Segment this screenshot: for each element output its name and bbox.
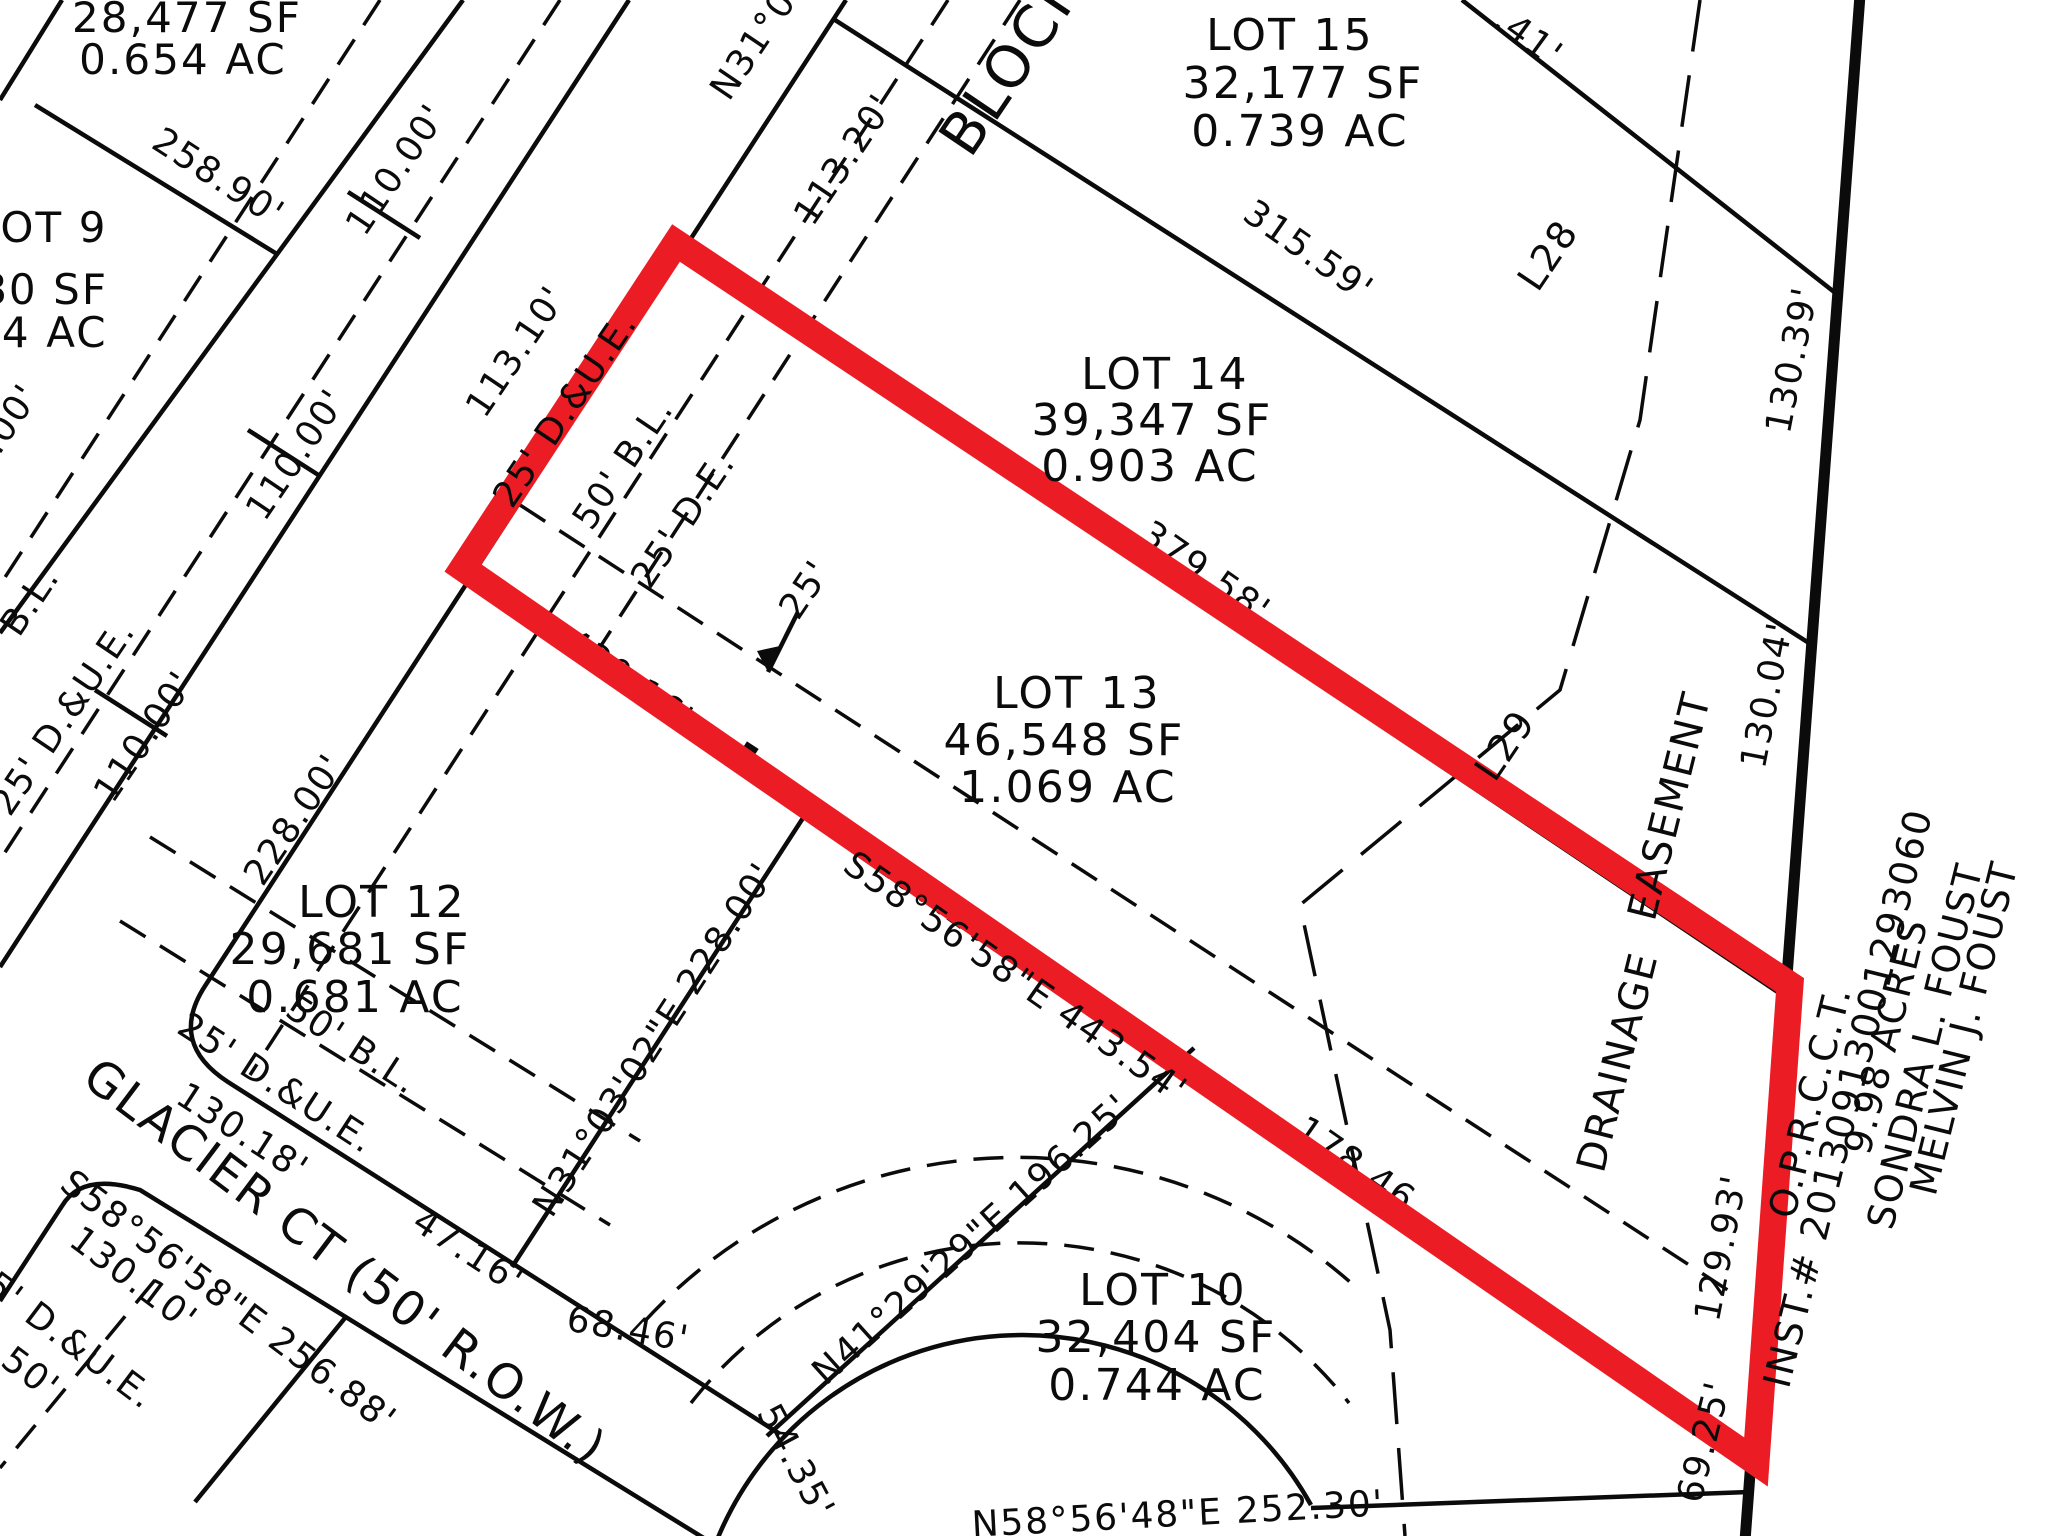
bearing-n58-252: N58°56'48"E 252.30' — [971, 1486, 1385, 1536]
dim-113-20: 113.20' — [789, 88, 902, 231]
dim-110-b: 110.00' — [241, 383, 354, 526]
arrow-25-label: 25' — [774, 555, 838, 626]
dim-258-90: 258.90' — [146, 122, 290, 233]
lot9-ac: 654 AC — [0, 312, 108, 354]
lot10-ac: 0.744 AC — [1048, 1364, 1266, 1408]
dim-69-25: 69.25' — [1673, 1378, 1738, 1507]
lot13-ac: 1.069 AC — [959, 766, 1177, 810]
dim-315-59: 315.59' — [1237, 195, 1379, 310]
lot12-name: LOT 12 — [298, 881, 466, 925]
bearing-s58-443: S58°56'58"E 443.54' — [837, 846, 1193, 1110]
dim-228-00: 228.00' — [239, 748, 352, 891]
lot13-sf: 46,548 SF — [944, 719, 1185, 763]
lot15-sf: 32,177 SF — [1183, 62, 1424, 106]
dim-129-93: 129.93' — [1690, 1172, 1754, 1325]
line-label-L28: L28 — [1511, 213, 1585, 297]
dim-68-46: 68.46' — [564, 1302, 692, 1359]
lot14-sf: 39,347 SF — [1032, 399, 1273, 443]
lot14-name: LOT 14 — [1081, 353, 1249, 397]
lot14-ac: 0.903 AC — [1041, 445, 1259, 489]
lot8-area-ac: 0.654 AC — [79, 39, 287, 81]
lot9-name: LOT 9 — [0, 207, 108, 249]
lot10-sf: 32,404 SF — [1036, 1316, 1277, 1360]
dim-110-a: 110.00' — [341, 98, 454, 241]
line-label-L29: L29 — [1468, 703, 1542, 787]
bearing-n31-top: N31°03'02"E — [705, 0, 875, 106]
dim-130-39: 130.39' — [1761, 284, 1825, 437]
easement-word: EASEMENT — [1622, 688, 1717, 924]
lot12-ac: 0.681 AC — [246, 976, 464, 1020]
drainage-word: DRAINAGE — [1571, 948, 1664, 1176]
dim-41-partial: .41' — [1487, 2, 1568, 75]
dim-110-d: 110.00' — [0, 378, 46, 521]
lot9-sf: ,480 SF — [0, 269, 108, 311]
lot10-name: LOT 10 — [1079, 1269, 1247, 1313]
dim-130-04: 130.04' — [1736, 619, 1800, 772]
block-label: BLOCK — [930, 0, 1095, 165]
left-50-bl: 50' B.L. — [0, 560, 67, 704]
labels-layer: 28,477 SF0.654 AC258.90'LOT 9,480 SF654 … — [0, 0, 2048, 1536]
lot15-ac: 0.739 AC — [1191, 110, 1409, 154]
dim-54-35: 54.35' — [750, 1399, 840, 1525]
lot8-area-sf: 28,477 SF — [72, 0, 302, 39]
lot12-sf: 29,681 SF — [230, 928, 471, 972]
lot13-name: LOT 13 — [993, 672, 1161, 716]
plat-map: 379.58'430.16'157.26178.46 28,477 SF0.65… — [0, 0, 2048, 1536]
bearing-n31-228: N31°03'02"E 228.00' — [527, 857, 782, 1223]
lot15-name: LOT 15 — [1206, 14, 1374, 58]
